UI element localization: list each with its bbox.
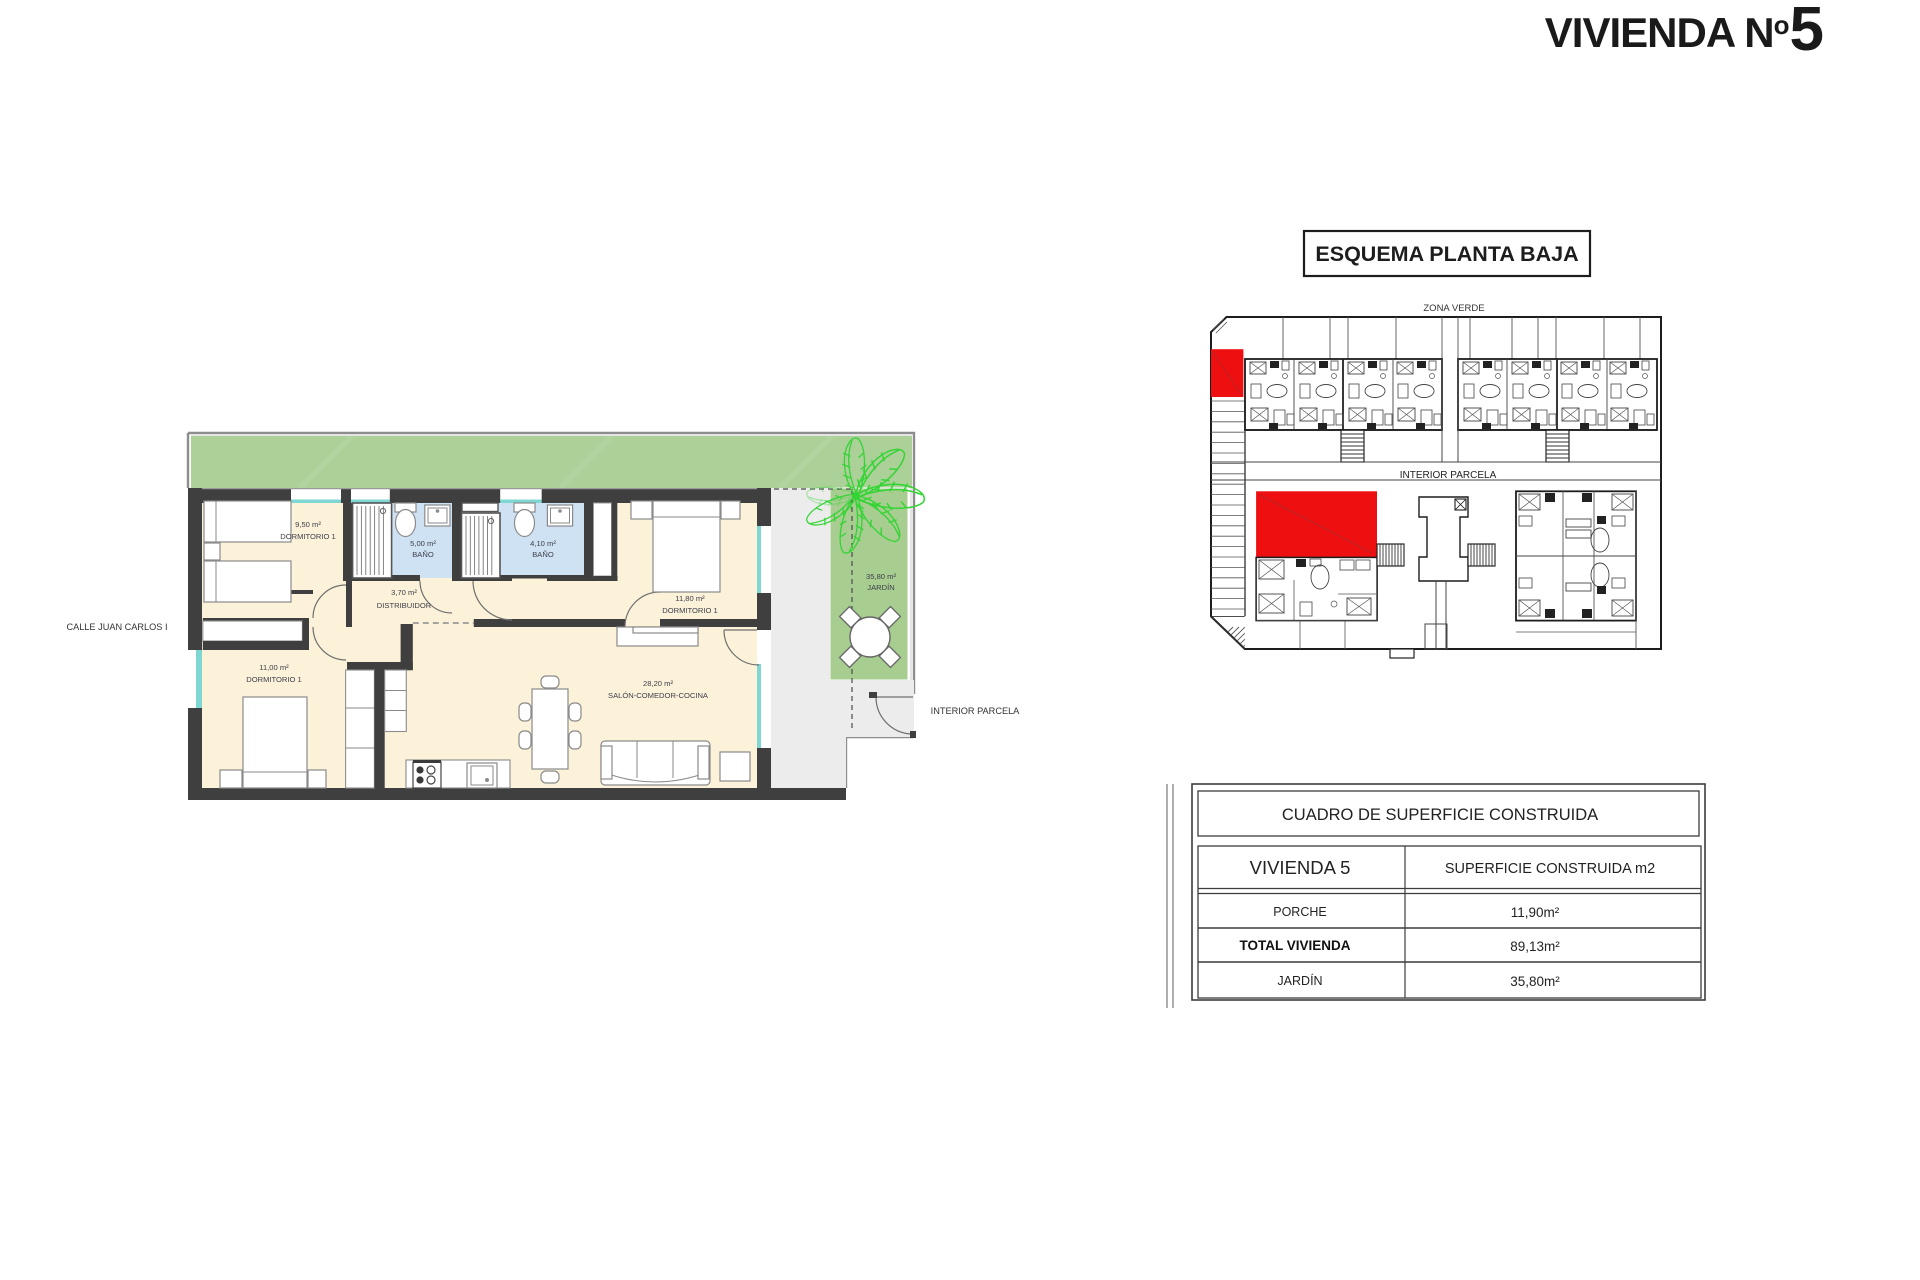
svg-text:ZONA VERDE: ZONA VERDE (1423, 303, 1484, 314)
svg-text:CALLE JUAN CARLOS I: CALLE JUAN CARLOS I (66, 622, 167, 632)
svg-text:4,10 m²: 4,10 m² (530, 539, 556, 548)
svg-text:35,80m²: 35,80m² (1510, 974, 1560, 989)
svg-text:DISTRIBUIDOR: DISTRIBUIDOR (377, 601, 432, 610)
svg-text:TOTAL VIVIENDA: TOTAL VIVIENDA (1239, 938, 1350, 953)
svg-text:DORMITORIO 1: DORMITORIO 1 (246, 675, 302, 684)
svg-text:89,13m²: 89,13m² (1510, 939, 1560, 954)
svg-text:9,50 m²: 9,50 m² (295, 520, 321, 529)
svg-text:VIVIENDA 5: VIVIENDA 5 (1250, 857, 1351, 878)
svg-text:28,20 m²: 28,20 m² (643, 679, 673, 688)
svg-text:PORCHE: PORCHE (1273, 905, 1326, 919)
svg-text:DORMITORIO 1: DORMITORIO 1 (662, 606, 718, 615)
svg-text:CUADRO DE SUPERFICIE CONSTRUID: CUADRO DE SUPERFICIE CONSTRUIDA (1282, 806, 1598, 824)
svg-text:BAÑO: BAÑO (412, 550, 434, 559)
svg-text:INTERIOR PARCELA: INTERIOR PARCELA (1400, 470, 1497, 481)
svg-text:11,00 m²: 11,00 m² (259, 663, 289, 672)
svg-text:35,80 m²: 35,80 m² (866, 572, 896, 581)
svg-text:BAÑO: BAÑO (532, 550, 554, 559)
svg-text:JARDÍN: JARDÍN (1277, 973, 1322, 988)
svg-text:JARDÍN: JARDÍN (867, 583, 894, 592)
svg-text:3,70 m²: 3,70 m² (391, 588, 417, 597)
svg-text:VIVIENDA No5: VIVIENDA No5 (1545, 0, 1824, 64)
svg-text:11,80 m²: 11,80 m² (675, 594, 705, 603)
svg-text:SUPERFICIE CONSTRUIDA m2: SUPERFICIE CONSTRUIDA m2 (1445, 861, 1655, 877)
svg-text:SALÓN-COMEDOR-COCINA: SALÓN-COMEDOR-COCINA (608, 691, 709, 700)
svg-text:11,90m²: 11,90m² (1511, 905, 1560, 920)
svg-text:INTERIOR PARCELA: INTERIOR PARCELA (931, 706, 1021, 716)
svg-text:DORMITORIO 1: DORMITORIO 1 (280, 532, 336, 541)
svg-text:5,00 m²: 5,00 m² (410, 539, 436, 548)
svg-text:ESQUEMA PLANTA BAJA: ESQUEMA PLANTA BAJA (1315, 242, 1578, 266)
